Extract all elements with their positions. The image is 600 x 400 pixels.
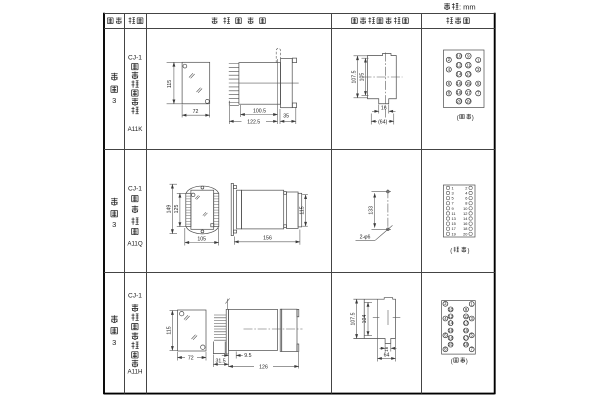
svg-text:115: 115 (300, 206, 306, 214)
svg-text:3: 3 (112, 96, 116, 105)
svg-text:11: 11 (466, 63, 471, 68)
svg-text:122.5: 122.5 (247, 119, 260, 125)
svg-text:72: 72 (188, 355, 194, 361)
svg-text:2-φ6: 2-φ6 (360, 235, 371, 241)
svg-text:(: ( (457, 116, 459, 122)
svg-text:149: 149 (166, 205, 172, 214)
svg-text:10: 10 (457, 53, 462, 58)
svg-text:72: 72 (193, 109, 199, 115)
svg-text:35: 35 (283, 114, 289, 120)
svg-text:64: 64 (384, 352, 390, 358)
svg-text:156: 156 (263, 236, 272, 242)
svg-text:105: 105 (359, 73, 365, 82)
svg-text:107.5: 107.5 (351, 70, 357, 83)
svg-text:14: 14 (457, 72, 462, 77)
svg-text:16: 16 (384, 346, 389, 352)
svg-text:18: 18 (457, 90, 462, 95)
svg-text:19: 19 (452, 231, 456, 236)
svg-text:125: 125 (174, 205, 180, 214)
svg-text:10: 10 (448, 307, 453, 312)
svg-text:9.5: 9.5 (244, 353, 251, 359)
svg-text:100.5: 100.5 (253, 108, 266, 114)
svg-text:3: 3 (112, 338, 116, 347)
svg-text:(: ( (451, 359, 453, 365)
svg-text:15: 15 (464, 328, 469, 333)
svg-text:13: 13 (464, 321, 469, 326)
svg-text:19: 19 (464, 342, 469, 347)
svg-text:CJ-1: CJ-1 (128, 55, 142, 62)
svg-text:16: 16 (457, 81, 462, 86)
svg-text:12: 12 (457, 63, 462, 68)
svg-text:14: 14 (448, 321, 453, 326)
svg-text:CJ-1: CJ-1 (128, 293, 142, 300)
svg-text:12: 12 (448, 314, 453, 319)
svg-text:20: 20 (457, 99, 462, 104)
svg-text:11: 11 (464, 314, 469, 319)
svg-text:104: 104 (362, 315, 368, 324)
svg-text:(64): (64) (378, 119, 387, 125)
svg-text:): ) (472, 116, 474, 122)
svg-text:19: 19 (466, 99, 471, 104)
svg-text:15: 15 (466, 81, 471, 86)
svg-text:17: 17 (466, 90, 471, 95)
svg-text:A11K: A11K (128, 126, 144, 133)
svg-text:(: ( (450, 249, 452, 255)
svg-text:126: 126 (259, 364, 268, 370)
svg-text:17: 17 (464, 335, 469, 340)
svg-text:105: 105 (197, 236, 206, 242)
svg-text:18: 18 (448, 335, 453, 340)
svg-text:3: 3 (112, 220, 116, 229)
svg-text:A11Q: A11Q (127, 241, 143, 248)
svg-text:A11H: A11H (127, 369, 142, 376)
svg-text:): ) (466, 359, 468, 365)
svg-text:16: 16 (448, 328, 453, 333)
svg-text:107.5: 107.5 (351, 312, 357, 325)
svg-text:CJ-1: CJ-1 (128, 186, 142, 193)
svg-text:: mm: : mm (459, 3, 476, 12)
svg-text:13: 13 (466, 72, 471, 77)
svg-text:115: 115 (166, 326, 172, 334)
svg-text:16: 16 (381, 106, 387, 112)
svg-text:133: 133 (369, 206, 375, 215)
svg-text:20: 20 (448, 342, 453, 347)
svg-text:): ) (468, 249, 470, 255)
svg-text:31.5: 31.5 (216, 359, 226, 365)
svg-text:115: 115 (167, 80, 173, 88)
